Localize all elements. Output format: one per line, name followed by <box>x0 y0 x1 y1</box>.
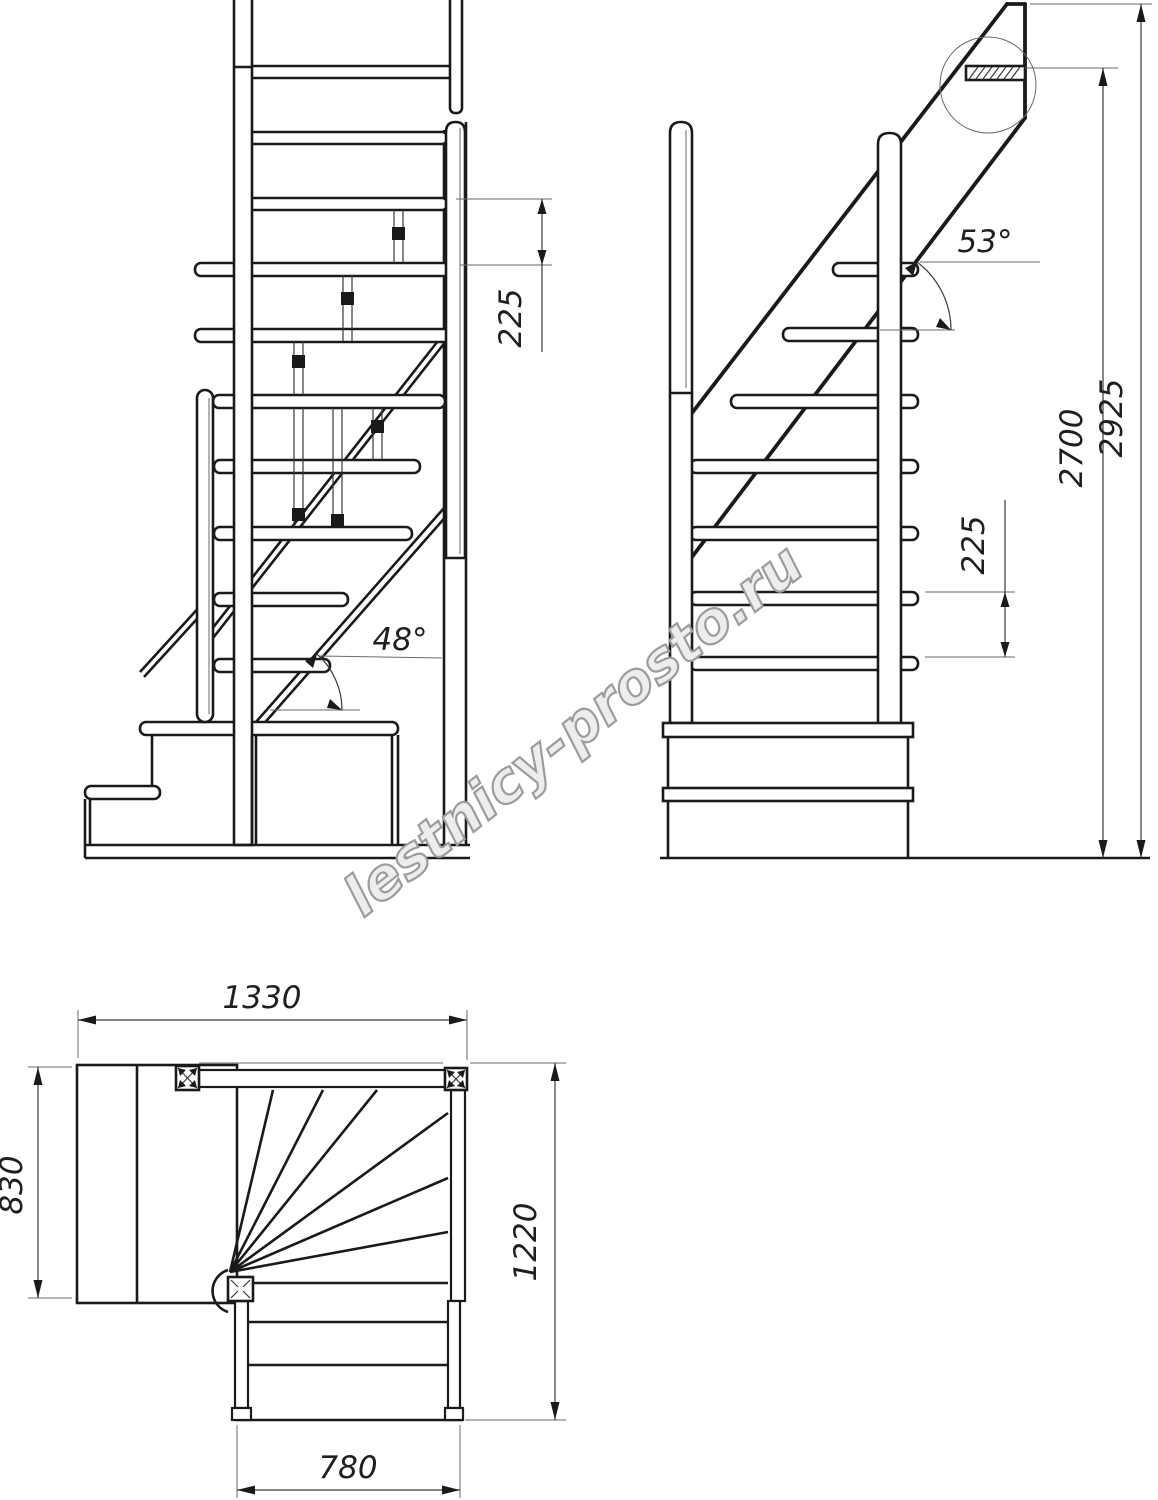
side-overall-height-label: 2925 <box>1094 379 1130 458</box>
plan-width-label: 1330 <box>223 980 302 1016</box>
front-slope-angle-label: 48° <box>373 622 428 658</box>
front-left-handrail-plank <box>197 390 213 722</box>
plan-flight-width-label: 780 <box>318 1450 377 1486</box>
plan-stair-depth-label: 1220 <box>508 1203 544 1282</box>
plan-flight-width-dimension: 780 <box>237 1425 460 1498</box>
plan-stair-depth-dimension: 1220 <box>465 1063 566 1420</box>
stair-blueprint: 225 48° <box>0 0 1158 1500</box>
side-riser-dimension-label: 225 <box>956 515 992 574</box>
side-floor-height-dimension: 2700 <box>1025 68 1118 858</box>
plan-view: 1330 830 1220 780 <box>0 980 566 1498</box>
front-riser-dimension: 225 <box>456 199 552 352</box>
side-riser-dimension: 225 <box>925 500 1015 657</box>
front-balusters <box>292 210 405 527</box>
side-overall-height-dimension: 2925 <box>1030 4 1152 858</box>
side-floor-height-label: 2700 <box>1054 409 1090 488</box>
front-posts <box>197 0 465 845</box>
plan-width-dimension: 1330 <box>78 980 467 1060</box>
front-right-newel-post <box>450 0 462 113</box>
plan-rails <box>199 1070 465 1420</box>
side-slope-angle-label: 53° <box>958 224 1013 260</box>
front-elevation-view: 225 48° <box>85 0 552 858</box>
side-plinth-base <box>663 723 913 858</box>
plan-landing-depth-dimension: 830 <box>0 1067 72 1298</box>
side-right-newel-post <box>878 133 901 723</box>
front-right-handrail-plank <box>446 122 465 558</box>
plan-straight-treads <box>235 1322 463 1420</box>
side-elevation-view: 53° 225 2700 2925 <box>660 4 1152 858</box>
plan-landing-depth-label: 830 <box>0 1155 30 1214</box>
front-central-column <box>234 0 252 845</box>
front-riser-dimension-label: 225 <box>493 288 529 347</box>
plan-landing <box>77 1065 237 1303</box>
stair-drawing-page: 225 48° <box>0 0 1158 1500</box>
